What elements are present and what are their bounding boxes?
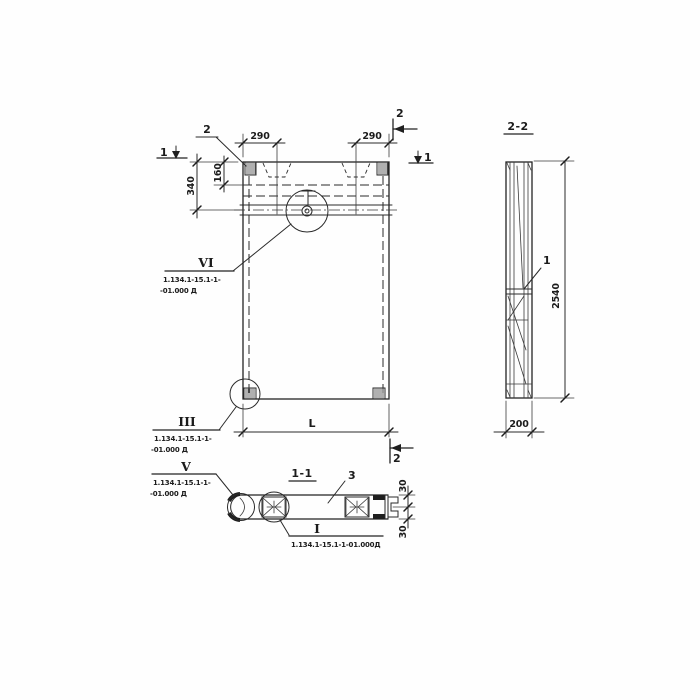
callout-III-numeral: III [178, 414, 196, 429]
callout-V: V 1.134.1-15.1-1- -01.000 Д [150, 459, 233, 498]
section-2-2-view: 2-2 1 [494, 120, 574, 438]
elevation-view: 290 290 340 160 [151, 107, 433, 465]
detail-callout-circle-V [228, 494, 255, 521]
callout-I: I 1.134.1-15.1-1-01.000Д [280, 520, 383, 549]
dim-text-290-right: 290 [362, 131, 382, 142]
callout-VI: VI 1.134.1-15.1-1- -01.000 Д [160, 224, 291, 295]
callout-V-ref2: -01.000 Д [150, 490, 187, 498]
middle-recess [345, 497, 369, 517]
marker-text-2-top: 2 [396, 107, 404, 120]
technical-drawing: 290 290 340 160 [0, 0, 700, 700]
section-1-1-view: 1-1 3 [150, 459, 415, 549]
label-3-text: 3 [348, 469, 356, 482]
callout-VI-ref1: 1.134.1-15.1-1- [163, 276, 221, 284]
section-marker-1-left: 1 [157, 146, 187, 159]
dim-text-2540: 2540 [551, 283, 562, 309]
detail-callout-circle-VI [286, 190, 328, 232]
leader-label-2: 2 [196, 123, 246, 166]
dim-text-30-top: 30 [398, 479, 409, 492]
anchor-plate-top-left [245, 162, 256, 175]
panel-outline [243, 162, 389, 399]
callout-V-numeral: V [180, 459, 191, 474]
callout-VI-ref2: -01.000 Д [160, 287, 197, 295]
detail-I-recess [259, 492, 289, 522]
dim-L: L [234, 404, 398, 437]
leader-text-2: 2 [203, 123, 211, 136]
section-marker-2-top: 2 [393, 107, 417, 140]
dim-text-L: L [308, 417, 315, 430]
anchor-plate-bottom-left [230, 379, 260, 409]
section-2-2-internal-lines [506, 162, 532, 398]
dim-30-top: 30 30 [393, 479, 415, 538]
dim-text-160: 160 [213, 163, 224, 183]
dim-text-290-left: 290 [250, 131, 270, 142]
callout-I-ref: 1.134.1-15.1-1-01.000Д [291, 541, 380, 549]
marker-text-1-left: 1 [160, 146, 168, 159]
dim-200: 200 [494, 401, 544, 438]
anchor-plate-top-right [377, 162, 388, 175]
anchor-plate-bottom-right [373, 388, 385, 399]
section-marker-1-right: 1 [409, 151, 433, 164]
label-3: 3 [328, 469, 356, 503]
callout-III: III 1.134.1-15.1-1- -01.000 Д [151, 407, 236, 454]
callout-VI-numeral: VI [197, 255, 214, 270]
dim-text-30-bottom: 30 [398, 525, 409, 538]
section-1-1-title-text: 1-1 [291, 467, 312, 480]
callout-V-ref1: 1.134.1-15.1-1- [153, 479, 211, 487]
marker-text-2-bottom: 2 [393, 452, 401, 465]
callout-III-ref2: -01.000 Д [151, 446, 188, 454]
horizontal-band [234, 205, 398, 215]
dim-2540: 2540 [534, 157, 574, 402]
section-marker-2-bottom: 2 [390, 439, 413, 465]
drawing-sheet: 290 290 340 160 [0, 0, 700, 700]
dim-text-200: 200 [509, 419, 529, 430]
label-1-text: 1 [543, 254, 551, 267]
lifting-loop-detail [286, 190, 328, 232]
section-2-2-title-text: 2-2 [507, 120, 528, 133]
section-1-1-title: 1-1 [289, 467, 316, 481]
callout-I-numeral: I [314, 521, 320, 536]
callout-III-ref1: 1.134.1-15.1-1- [154, 435, 212, 443]
dim-text-340: 340 [186, 176, 197, 196]
section-2-2-title: 2-2 [504, 120, 533, 134]
marker-text-1-right: 1 [424, 151, 432, 164]
